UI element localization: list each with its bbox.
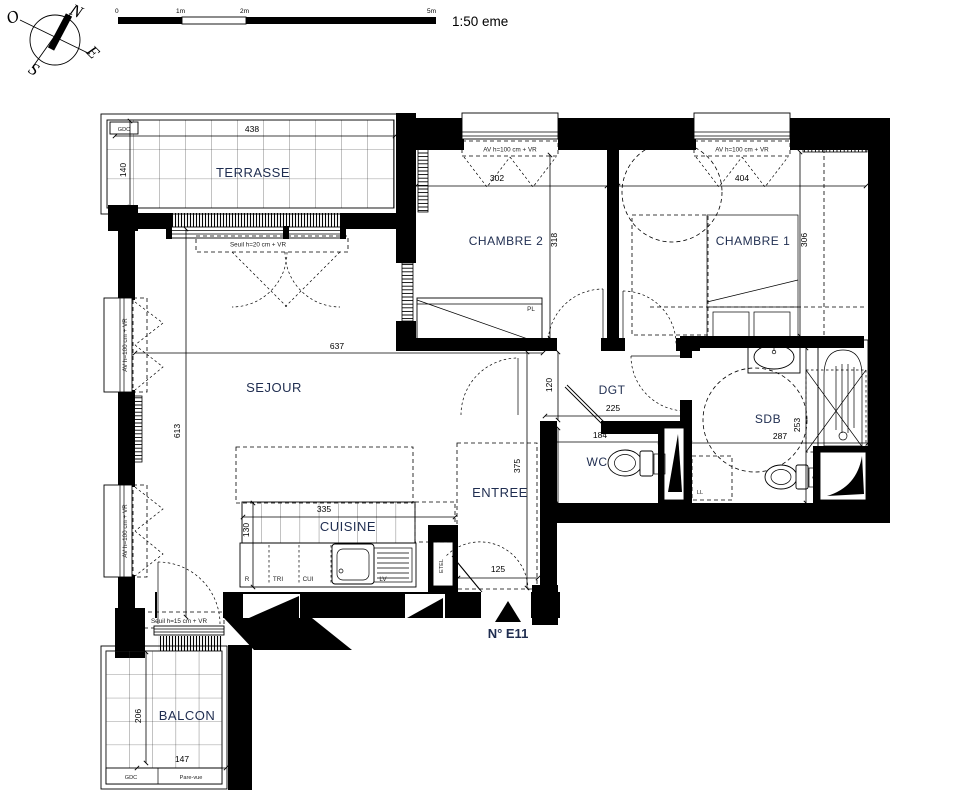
tri-label: TRI [273, 576, 283, 583]
room-label-sdb: SDB [755, 412, 781, 426]
entrance-door [446, 542, 528, 592]
compass-rose: N E S O [3, 0, 104, 80]
kitchen-counter: R TRI CUI LV [240, 502, 416, 587]
door-chambre2 [548, 289, 603, 344]
dim-chambre2-w: 302 [490, 173, 504, 183]
room-label-entree: ENTREE [472, 485, 528, 500]
room-label-chambre1: CHAMBRE 1 [716, 234, 791, 248]
lave-vaisselle-label: LV [379, 576, 387, 583]
av-label-sejour-2: AV h=100 cm + VR [122, 504, 129, 558]
dim-wc-h: 117 [544, 454, 554, 468]
av-label-sejour-1: AV h=100 cm + VR [122, 318, 129, 372]
dim-dgt-h: 120 [544, 378, 554, 392]
window-chambre1 [694, 113, 790, 139]
compass-south-label: S [25, 59, 42, 80]
compass-west-label: O [3, 6, 22, 28]
dim-chambre1-h: 306 [799, 233, 809, 247]
scale-ratio-label: 1:50 eme [452, 14, 508, 29]
dim-wc-w: 184 [593, 430, 607, 440]
seuil-balcon-label: Seuil h=15 cm + VR [151, 618, 207, 625]
gdc-label-terrasse: GDC [118, 127, 130, 133]
etel-label: ETEL [439, 559, 445, 573]
compass-east-label: E [82, 41, 104, 63]
kitchen-zone [236, 447, 413, 503]
room-label-terrasse: TERRASSE [216, 165, 290, 180]
dim-terrasse-h: 140 [118, 163, 128, 177]
scale-tick-5m: 5m [427, 8, 436, 15]
toilet-icon-sdb [765, 465, 819, 489]
room-label-sejour: SEJOUR [246, 380, 302, 395]
radiator-icon [418, 144, 428, 212]
unit-number-label: N° E11 [488, 626, 529, 641]
door-sdb [631, 356, 686, 411]
floor-plan-page: N E S O 0 1m 2m 5m 1:50 eme GDC [0, 0, 960, 800]
radiator-icon [803, 141, 867, 152]
dim-cuisine-w: 335 [317, 504, 331, 514]
scale-tick-0: 0 [115, 8, 119, 15]
radiator-icon [132, 396, 142, 462]
av-label-chambre1: AV h=100 cm + VR [715, 147, 769, 154]
cuisson-label: CUI [303, 576, 314, 583]
room-label-wc: WC [587, 455, 608, 469]
room-label-balcon: BALCON [159, 708, 215, 723]
dim-sejour-w: 637 [330, 341, 344, 351]
door-chambre1 [623, 291, 676, 344]
window-chambre2 [462, 113, 558, 139]
gdc-label-balcon: GDC [125, 775, 137, 781]
dim-chambre1-w: 404 [735, 173, 749, 183]
scale-tick-2m: 2m [240, 8, 249, 15]
placard-label: PL [527, 306, 535, 313]
room-label-dgt: DGT [599, 383, 626, 397]
closet-pl: PL [417, 298, 542, 344]
av-label-chambre2: AV h=100 cm + VR [483, 147, 537, 154]
fridge-label: R [245, 576, 250, 583]
dim-entree-w: 125 [491, 564, 505, 574]
scale-bar: 0 1m 2m 5m 1:50 eme [115, 8, 508, 29]
room-label-cuisine: CUISINE [320, 519, 376, 534]
compass-needle [51, 15, 69, 49]
terrasse-door: Seuil h=20 cm + VR [166, 213, 348, 307]
dim-chambre2-h: 318 [549, 233, 559, 247]
door-dgt [461, 358, 518, 415]
dim-cuisine-h: 130 [241, 523, 251, 537]
bathtub-icon [806, 340, 868, 452]
dim-balcon-h: 206 [133, 709, 143, 723]
dim-sdb-w: 287 [773, 431, 787, 441]
dim-sejour-h: 613 [172, 424, 182, 438]
dim-sdb-h: 253 [792, 418, 802, 432]
toilet-icon-wc [608, 450, 665, 476]
dim-balcon-w: 147 [175, 754, 189, 764]
dim-dgt-w: 225 [606, 403, 620, 413]
scale-tick-1m: 1m [176, 8, 185, 15]
seuil-terrasse-label: Seuil h=20 cm + VR [230, 242, 286, 249]
floor-plan-drawing: N E S O 0 1m 2m 5m 1:50 eme GDC [0, 0, 960, 800]
interior-doors [446, 289, 686, 592]
dim-entree-h: 375 [512, 459, 522, 473]
pare-vue-label: Pare-vue [180, 775, 203, 781]
room-label-chambre2: CHAMBRE 2 [469, 234, 544, 248]
dim-terrasse-w: 438 [245, 124, 259, 134]
radiator-icon [402, 263, 413, 321]
lave-linge-label: LL [697, 490, 703, 496]
